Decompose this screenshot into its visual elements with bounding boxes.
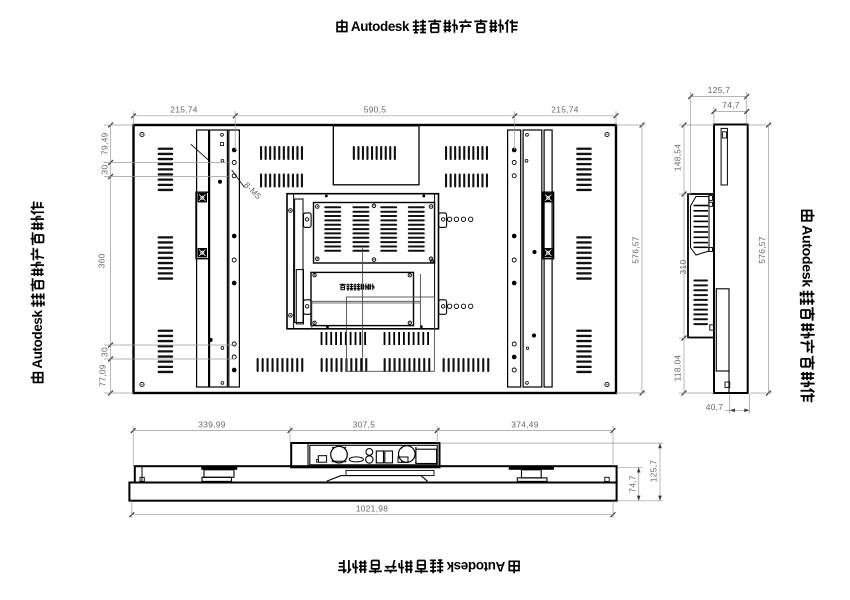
svg-text:Autodesk: Autodesk <box>446 559 505 574</box>
svg-text:77,09: 77,09 <box>98 364 108 387</box>
svg-text:148,54: 148,54 <box>673 144 683 171</box>
svg-text:74,7: 74,7 <box>627 475 637 493</box>
svg-text:360: 360 <box>97 253 107 268</box>
svg-text:215,74: 215,74 <box>551 104 578 114</box>
svg-text:374,49: 374,49 <box>511 419 538 429</box>
svg-text:79,49: 79,49 <box>99 132 109 155</box>
svg-text:590,5: 590,5 <box>364 104 387 114</box>
svg-text:40,7: 40,7 <box>706 402 724 412</box>
svg-text:Autodesk: Autodesk <box>798 225 814 287</box>
svg-text:215,74: 215,74 <box>170 104 197 114</box>
svg-text:118,04: 118,04 <box>673 355 683 382</box>
svg-text:125,7: 125,7 <box>708 85 731 95</box>
svg-text:Autodesk: Autodesk <box>351 19 410 34</box>
svg-text:576,57: 576,57 <box>757 236 767 263</box>
svg-text:310: 310 <box>678 260 688 275</box>
svg-text:30: 30 <box>99 347 109 357</box>
svg-text:Autodesk: Autodesk <box>30 309 45 368</box>
svg-text:125,7: 125,7 <box>649 460 659 483</box>
svg-text:339,99: 339,99 <box>198 419 225 429</box>
svg-text:74,7: 74,7 <box>722 100 740 110</box>
svg-text:1021,98: 1021,98 <box>356 504 388 514</box>
svg-text:576,57: 576,57 <box>631 236 641 263</box>
svg-text:307,5: 307,5 <box>353 419 376 429</box>
svg-text:30: 30 <box>99 165 109 175</box>
